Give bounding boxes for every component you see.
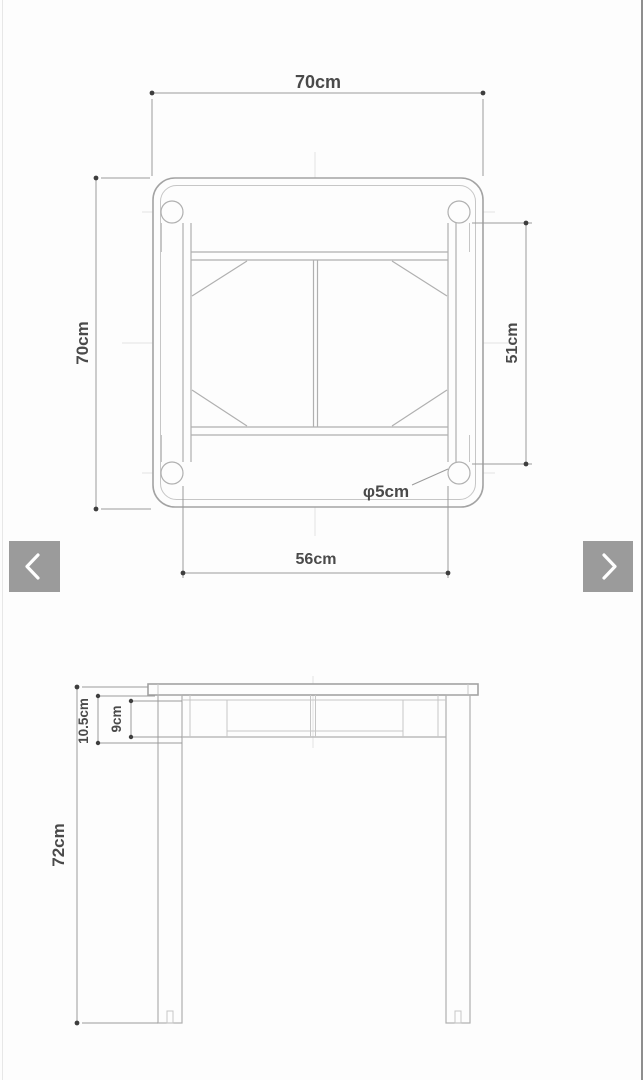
dimension-label-leg-span-depth: 51cm [504, 323, 521, 364]
left-leg [158, 695, 182, 1023]
chevron-left-icon [9, 541, 60, 592]
dimension-label-leg-diameter: φ5cm [363, 482, 409, 501]
dimension-height: 72cm [49, 685, 158, 1026]
dimension-label-top-to-apron: 10.5cm [76, 698, 91, 744]
dimension-apron-height: 9cm [109, 699, 182, 739]
right-foot-notch [455, 1011, 461, 1023]
dimension-label-top-width: 70cm [295, 72, 341, 92]
side-view-dimensions: 72cm 10.5cm 9cm [49, 685, 182, 1026]
side-view [148, 676, 478, 1023]
left-foot-notch [167, 1011, 173, 1023]
furniture-dimension-drawing: 70cm 70cm 51cm 56cm φ5cm [0, 0, 643, 1080]
dimension-label-height: 72cm [49, 823, 68, 866]
carousel-next-button[interactable] [583, 541, 633, 592]
carousel-prev-button[interactable] [9, 541, 60, 592]
tabletop-side [148, 684, 478, 695]
top-view [122, 152, 514, 536]
chevron-right-icon [583, 541, 633, 592]
apron-panel-lines [182, 700, 446, 731]
dimension-top-width: 70cm [150, 72, 486, 176]
dimension-label-top-depth: 70cm [73, 321, 92, 364]
right-leg [446, 695, 470, 1023]
dimension-label-leg-span-width: 56cm [296, 551, 337, 568]
dimension-label-apron-height: 9cm [109, 705, 124, 732]
